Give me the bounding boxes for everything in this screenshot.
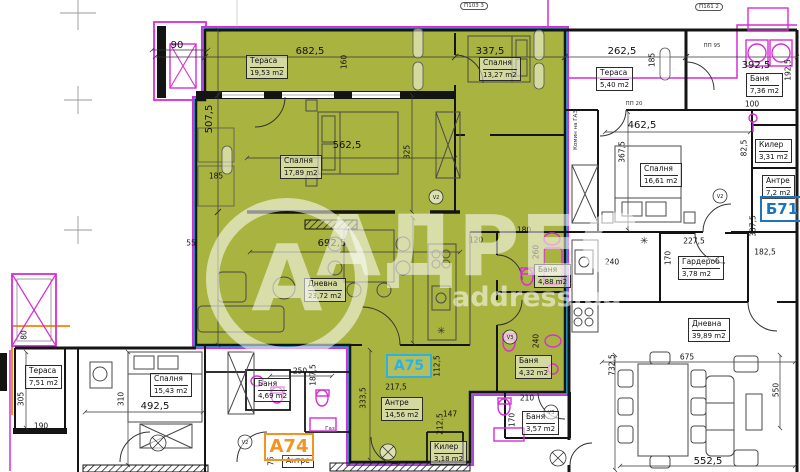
dim-label: 392,5: [742, 61, 771, 71]
room-label: Баня4,88 m2: [534, 264, 571, 288]
annotation-tag: П161 2: [695, 3, 723, 11]
room-label: Гардероб3,78 m2: [678, 256, 724, 280]
dim-label: 250: [293, 367, 307, 375]
dim-label: 180: [517, 226, 531, 234]
dim-label: 170: [508, 413, 516, 427]
dim-label: 182,5: [754, 248, 775, 256]
text-layer: 90 682,5 160 337,5 262,5 185 392,5 192,5…: [0, 0, 800, 472]
dim-label: 120: [469, 236, 483, 244]
annotation-tag: П103 3: [460, 2, 488, 10]
annotation-tag: Комин на ГАЗ: [573, 110, 579, 150]
dim-label: 227,5: [683, 237, 704, 245]
room-label: Килер3,18 m2: [430, 441, 467, 465]
annotation-tag: Газ: [325, 426, 335, 432]
dim-label: 147: [443, 410, 457, 418]
dim-label: 90: [171, 41, 184, 51]
dim-label: 462,5: [628, 121, 657, 131]
dim-label: 112,5: [433, 355, 441, 376]
dim-label: 333,5: [359, 387, 367, 408]
room-label: Баня4,69 m2: [254, 378, 291, 402]
room-label: Дневна39,89 m2: [688, 318, 730, 342]
dim-label: 185: [648, 53, 656, 67]
room-label: Баня4,32 m2: [515, 355, 552, 379]
floorplan-canvas: ✳ ✳ V2 V3 V3 V2 V2: [0, 0, 800, 472]
dim-label: 262,5: [608, 47, 637, 57]
annotation-tag: ПП 20: [625, 101, 642, 107]
dim-label: 82,5: [740, 140, 748, 157]
dim-label: 185: [209, 172, 223, 180]
room-label: Спалня13,27 m2: [479, 57, 521, 81]
dim-label: 210: [520, 394, 534, 402]
dim-label: 100: [745, 100, 759, 108]
room-label: Антре14,56 m2: [381, 397, 423, 421]
dim-label: 367,5: [618, 141, 626, 162]
dim-label: 212,5: [436, 413, 444, 434]
room-label: Баня3,57 m2: [522, 411, 559, 435]
room-label: Килер3,31 m2: [755, 139, 792, 163]
dim-label: 187,5: [309, 364, 317, 385]
room-label: Тераса7,51 m2: [25, 365, 62, 389]
annotation-tag: ПП 95: [703, 43, 720, 49]
dim-label: 675: [680, 353, 694, 361]
dim-label: 682,5: [296, 47, 325, 57]
dim-label: 170: [664, 251, 672, 265]
dim-label: 190: [34, 422, 48, 430]
dim-label: 310: [117, 392, 125, 406]
dim-label: 492,5: [141, 402, 170, 412]
dim-label: 550: [772, 383, 780, 397]
apartment-badge-b71[interactable]: Б71: [760, 196, 800, 222]
room-label: Спалня16,61 m2: [640, 163, 682, 187]
dim-label: 337,5: [749, 215, 757, 236]
dim-label: 80: [20, 330, 28, 340]
dim-label: 217,5: [385, 383, 406, 391]
room-label: Тераса19,53 m2: [246, 55, 288, 79]
dim-label: 552,5: [694, 457, 723, 467]
dim-label: 337,5: [476, 47, 505, 57]
dim-label: 192,5: [784, 59, 792, 80]
room-label: Баня7,36 m2: [746, 73, 783, 97]
apartment-badge-a75[interactable]: А75: [386, 354, 432, 378]
dim-label: 507,5: [205, 105, 215, 134]
dim-label: 692,5: [318, 239, 347, 249]
dim-label: 305: [17, 392, 25, 406]
dim-label: 160: [340, 55, 348, 69]
apartment-badge-a74[interactable]: А74: [264, 433, 314, 461]
dim-label: 260: [532, 245, 540, 259]
dim-label: 240: [605, 258, 619, 266]
dim-label: 732,5: [608, 354, 616, 375]
room-label: Тераса5,40 m2: [596, 67, 633, 91]
dim-label: 562,5: [333, 141, 362, 151]
dim-label: 325: [403, 145, 411, 159]
room-label: Спалня17,89 m2: [280, 155, 322, 179]
dim-label: 55: [186, 239, 196, 247]
dim-label: 240: [532, 334, 540, 348]
room-label: Спалня15,43 m2: [150, 373, 192, 397]
room-label: Дневна23,72 m2: [304, 278, 346, 302]
